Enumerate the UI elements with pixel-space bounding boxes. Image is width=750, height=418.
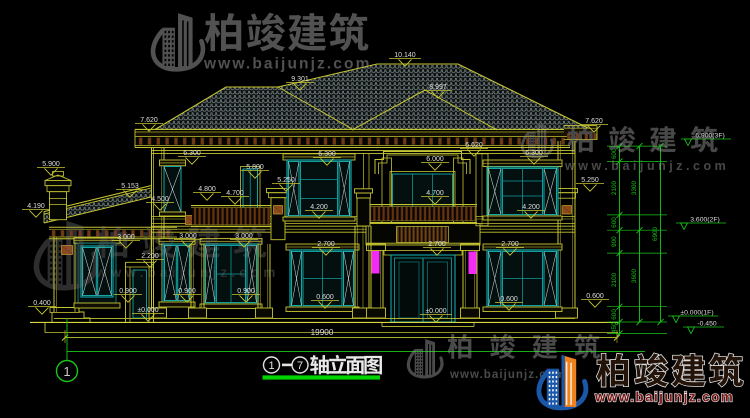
svg-text:2100: 2100: [611, 180, 618, 195]
svg-text:±0.000(1F): ±0.000(1F): [680, 310, 713, 317]
svg-text:4.200: 4.200: [310, 204, 328, 211]
svg-text:2.700: 2.700: [501, 241, 519, 248]
svg-text:0.900: 0.900: [178, 288, 196, 295]
svg-text:5.153: 5.153: [121, 183, 139, 190]
svg-text:-0.450: -0.450: [697, 321, 716, 328]
svg-text:0.900: 0.900: [237, 288, 255, 295]
svg-text:www.baijunjz.com: www.baijunjz.com: [594, 390, 734, 405]
svg-text:4.700: 4.700: [226, 190, 244, 197]
svg-text:10.140: 10.140: [394, 52, 416, 59]
svg-text:6.300: 6.300: [318, 151, 336, 158]
svg-text:1: 1: [63, 364, 70, 379]
svg-text:4.500: 4.500: [151, 196, 169, 203]
svg-text:0.400: 0.400: [33, 300, 51, 307]
svg-text:9.301: 9.301: [291, 76, 309, 83]
svg-text:6.000: 6.000: [426, 156, 444, 163]
svg-text:900: 900: [611, 236, 618, 247]
svg-text:3.600(2F): 3.600(2F): [690, 217, 719, 224]
svg-text:3300: 3300: [631, 180, 638, 195]
svg-text:5.250: 5.250: [581, 177, 599, 184]
svg-text:4.700: 4.700: [426, 190, 444, 197]
svg-text:6.620: 6.620: [465, 142, 483, 149]
svg-text:7: 7: [297, 360, 303, 372]
svg-text:4.200: 4.200: [522, 204, 540, 211]
svg-text:4.800: 4.800: [198, 186, 216, 193]
svg-text:5.250: 5.250: [277, 177, 295, 184]
svg-text:0.600: 0.600: [316, 294, 334, 301]
svg-text:www.baijunjz.com: www.baijunjz.com: [203, 56, 371, 73]
svg-text:±0.000: ±0.000: [425, 308, 446, 315]
svg-text:19900: 19900: [311, 328, 334, 337]
svg-text:±0.000: ±0.000: [137, 307, 158, 314]
svg-text:6900: 6900: [652, 226, 659, 241]
svg-text:2.700: 2.700: [428, 241, 446, 248]
svg-text:0.600: 0.600: [500, 296, 518, 303]
svg-text:2.700: 2.700: [317, 241, 335, 248]
svg-text:7.620: 7.620: [140, 117, 158, 124]
svg-text:1: 1: [268, 360, 274, 372]
svg-text:600: 600: [611, 309, 618, 320]
svg-text:600: 600: [611, 148, 618, 159]
svg-text:8.997: 8.997: [429, 84, 447, 91]
svg-text:2100: 2100: [611, 272, 618, 287]
svg-text:6.300: 6.300: [183, 150, 201, 157]
svg-text:600: 600: [611, 217, 618, 228]
svg-text:0.600: 0.600: [586, 293, 604, 300]
svg-text:5.900: 5.900: [42, 161, 60, 168]
svg-text:www.baijunjz.com: www.baijunjz.com: [564, 159, 728, 173]
svg-text:7.620: 7.620: [585, 118, 603, 125]
svg-text:5.800: 5.800: [246, 164, 264, 171]
svg-text:0.900: 0.900: [119, 288, 137, 295]
svg-text:3600: 3600: [631, 268, 638, 283]
svg-text:4.190: 4.190: [27, 203, 45, 210]
